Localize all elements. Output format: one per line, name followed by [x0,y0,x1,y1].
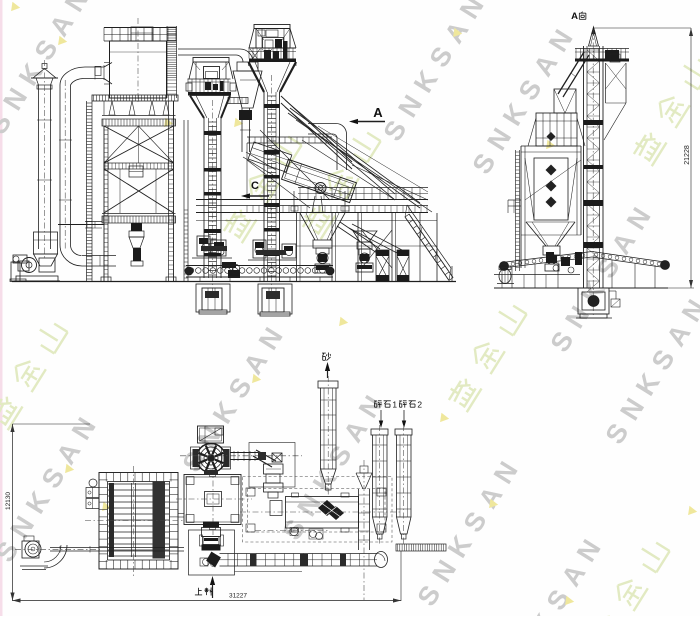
svg-text:2: 2 [417,400,422,410]
svg-text:31227: 31227 [229,593,247,600]
svg-text:C: C [251,180,259,192]
svg-text:21228: 21228 [684,145,691,165]
svg-text:1: 1 [392,400,397,410]
svg-text:A: A [571,11,578,22]
svg-text:A: A [373,105,383,120]
svg-text:12130: 12130 [5,492,12,510]
